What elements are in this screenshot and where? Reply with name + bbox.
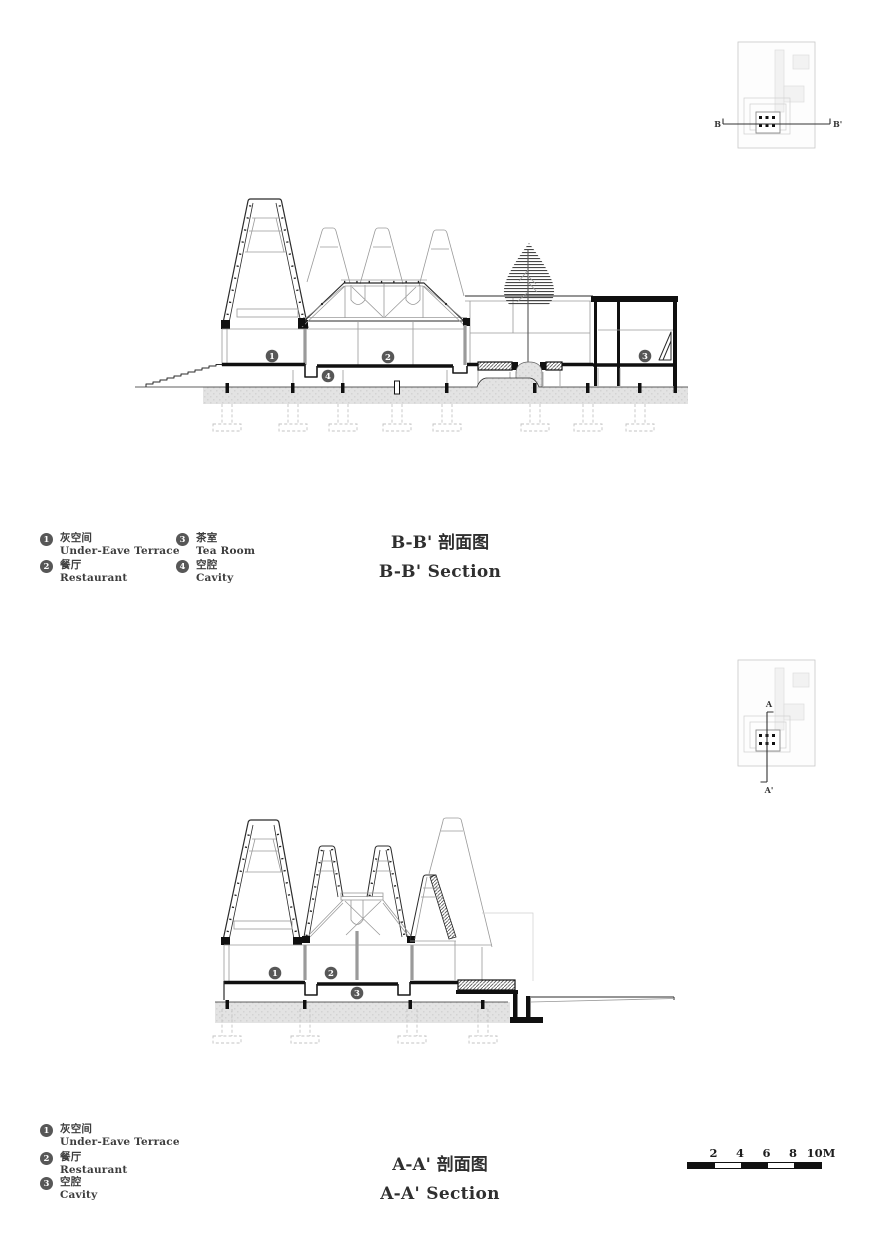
tree <box>504 243 554 368</box>
legend-label-zh: 餐厅 <box>60 1151 127 1164</box>
legend-item: 1 灰空间Under-Eave Terrace <box>40 1123 180 1149</box>
aa-section-drawing: 1 2 3 <box>180 790 700 1070</box>
roof-truss <box>298 280 470 327</box>
wall-band <box>222 321 465 386</box>
bb-key-plan: B B' <box>705 30 850 155</box>
callout-number: 1 <box>269 352 275 362</box>
legend-item: 2 餐厅Restaurant <box>40 559 127 585</box>
scale-label: 2 <box>709 1146 717 1160</box>
bb-section-drawing: 1 2 3 4 <box>135 185 695 445</box>
section-label-end: B' <box>833 119 842 129</box>
scale-label: 10M <box>807 1146 836 1160</box>
legend-label-en: Restaurant <box>60 572 127 585</box>
scale-label: 4 <box>736 1146 744 1160</box>
drawing-sheet: { "colors": { "ink": "#2b2b2b", "light_l… <box>0 0 880 1244</box>
legend-bullet: 1 <box>40 533 53 546</box>
aa-key-plan: A A' <box>705 645 850 805</box>
legend-label-zh: 餐厅 <box>60 559 127 572</box>
background-cone <box>429 818 533 981</box>
scale-label: 8 <box>789 1146 797 1160</box>
legend-label-zh: 灰空间 <box>60 1123 180 1136</box>
section-label-start: A <box>765 699 773 709</box>
legend-label-zh: 空腔 <box>60 1176 97 1189</box>
bb-title-en: B-B' Section <box>340 562 540 582</box>
stair <box>146 365 222 388</box>
callout-number: 2 <box>328 969 334 979</box>
legend-label-zh: 茶室 <box>196 532 255 545</box>
aa-title-en: A-A' Section <box>340 1184 540 1204</box>
legend-label-en: Cavity <box>196 572 233 585</box>
kiln-cones-middle <box>302 846 415 943</box>
legend-label-en: Cavity <box>60 1189 97 1202</box>
section-label-start: B <box>714 119 721 129</box>
callout-number: 2 <box>385 353 391 363</box>
kiln-cone-large <box>221 820 302 945</box>
legend-bullet: 1 <box>40 1124 53 1137</box>
legend-bullet: 2 <box>40 560 53 573</box>
scale-label: 6 <box>762 1146 770 1160</box>
tea-room <box>591 296 678 386</box>
aa-title: A-A' 剖面图 A-A' Section <box>340 1155 540 1204</box>
callout-number: 4 <box>325 372 331 382</box>
legend-label-en: Under-Eave Terrace <box>60 545 180 558</box>
kiln-cone-small <box>410 875 456 941</box>
callout-number: 3 <box>354 989 360 999</box>
legend-item: 3 空腔Cavity <box>40 1176 97 1202</box>
legend-label-en: Under-Eave Terrace <box>60 1136 180 1149</box>
legend-label-zh: 灰空间 <box>60 532 180 545</box>
scale-bar: 2 4 6 8 10M <box>687 1146 827 1170</box>
kiln-cone-large <box>221 199 308 329</box>
legend-bullet: 2 <box>40 1152 53 1165</box>
legend-item: 3 茶室Tea Room <box>176 532 255 558</box>
callout-number: 1 <box>272 969 278 979</box>
ground <box>215 1002 510 1023</box>
legend-label-zh: 空腔 <box>196 559 233 572</box>
scale-bar-graphic <box>687 1162 822 1169</box>
ground <box>135 378 688 404</box>
legend-item: 4 空腔Cavity <box>176 559 233 585</box>
legend-item: 1 灰空间Under-Eave Terrace <box>40 532 180 558</box>
legend-label-en: Tea Room <box>196 545 255 558</box>
legend-item: 2 餐厅Restaurant <box>40 1151 127 1177</box>
section-label-end: A' <box>764 785 774 795</box>
legend-bullet: 4 <box>176 560 189 573</box>
legend-bullet: 3 <box>176 533 189 546</box>
pile-footings <box>213 404 654 431</box>
callout-number: 3 <box>642 352 648 362</box>
bb-title: B-B' 剖面图 B-B' Section <box>340 533 540 582</box>
aa-title-zh: A-A' 剖面图 <box>340 1155 540 1175</box>
bb-title-zh: B-B' 剖面图 <box>340 533 540 553</box>
legend-bullet: 3 <box>40 1177 53 1190</box>
